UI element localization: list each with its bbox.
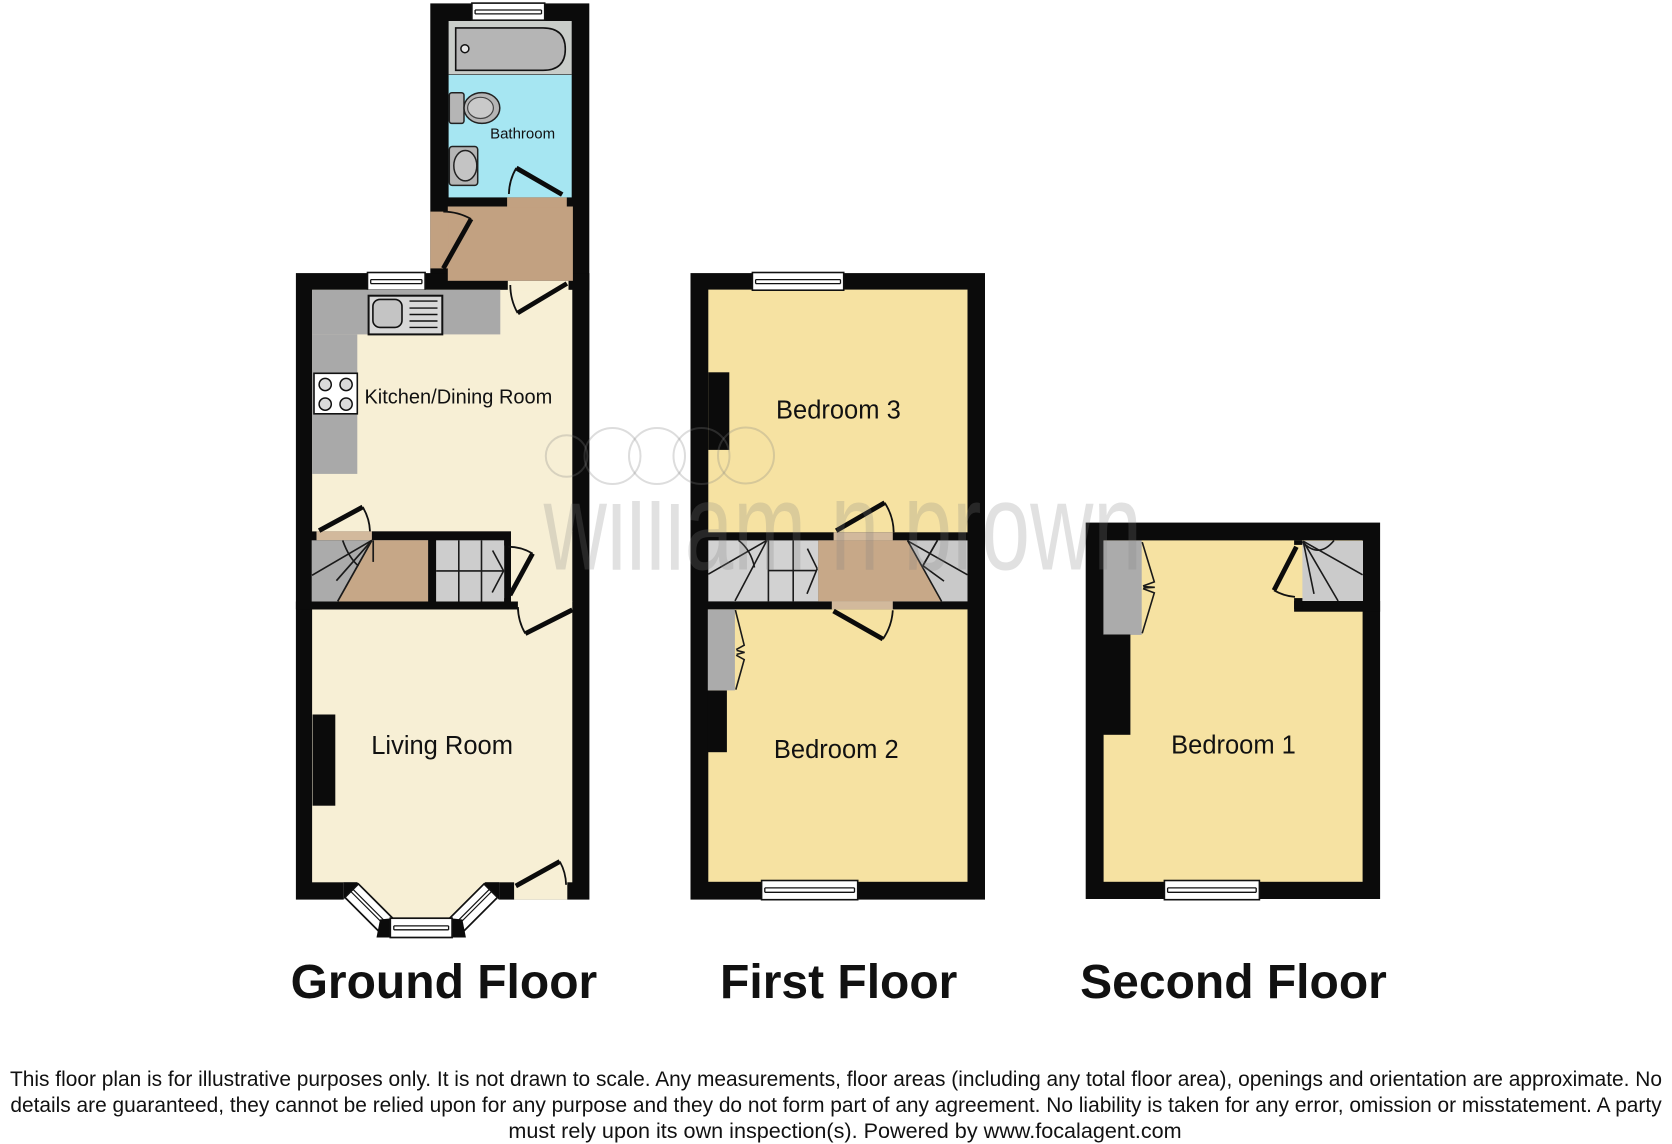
svg-text:Bedroom 2: Bedroom 2 (774, 736, 899, 764)
svg-text:Ground Floor: Ground Floor (291, 956, 598, 1009)
svg-text:must rely upon its own inspect: must rely upon its own inspection(s). Po… (508, 1118, 1181, 1143)
svg-text:Living Room: Living Room (371, 732, 513, 760)
svg-text:Bathroom: Bathroom (490, 126, 555, 143)
svg-text:Kitchen/Dining Room: Kitchen/Dining Room (364, 387, 552, 409)
svg-text:This floor plan is for illustr: This floor plan is for illustrative purp… (10, 1068, 1662, 1091)
svg-text:First Floor: First Floor (720, 956, 957, 1009)
svg-text:Second Floor: Second Floor (1080, 956, 1387, 1009)
svg-text:Bedroom 3: Bedroom 3 (776, 396, 901, 424)
svg-text:Bedroom 1: Bedroom 1 (1171, 731, 1296, 759)
svg-text:details are guaranteed, they c: details are guaranteed, they cannot be r… (10, 1094, 1662, 1117)
